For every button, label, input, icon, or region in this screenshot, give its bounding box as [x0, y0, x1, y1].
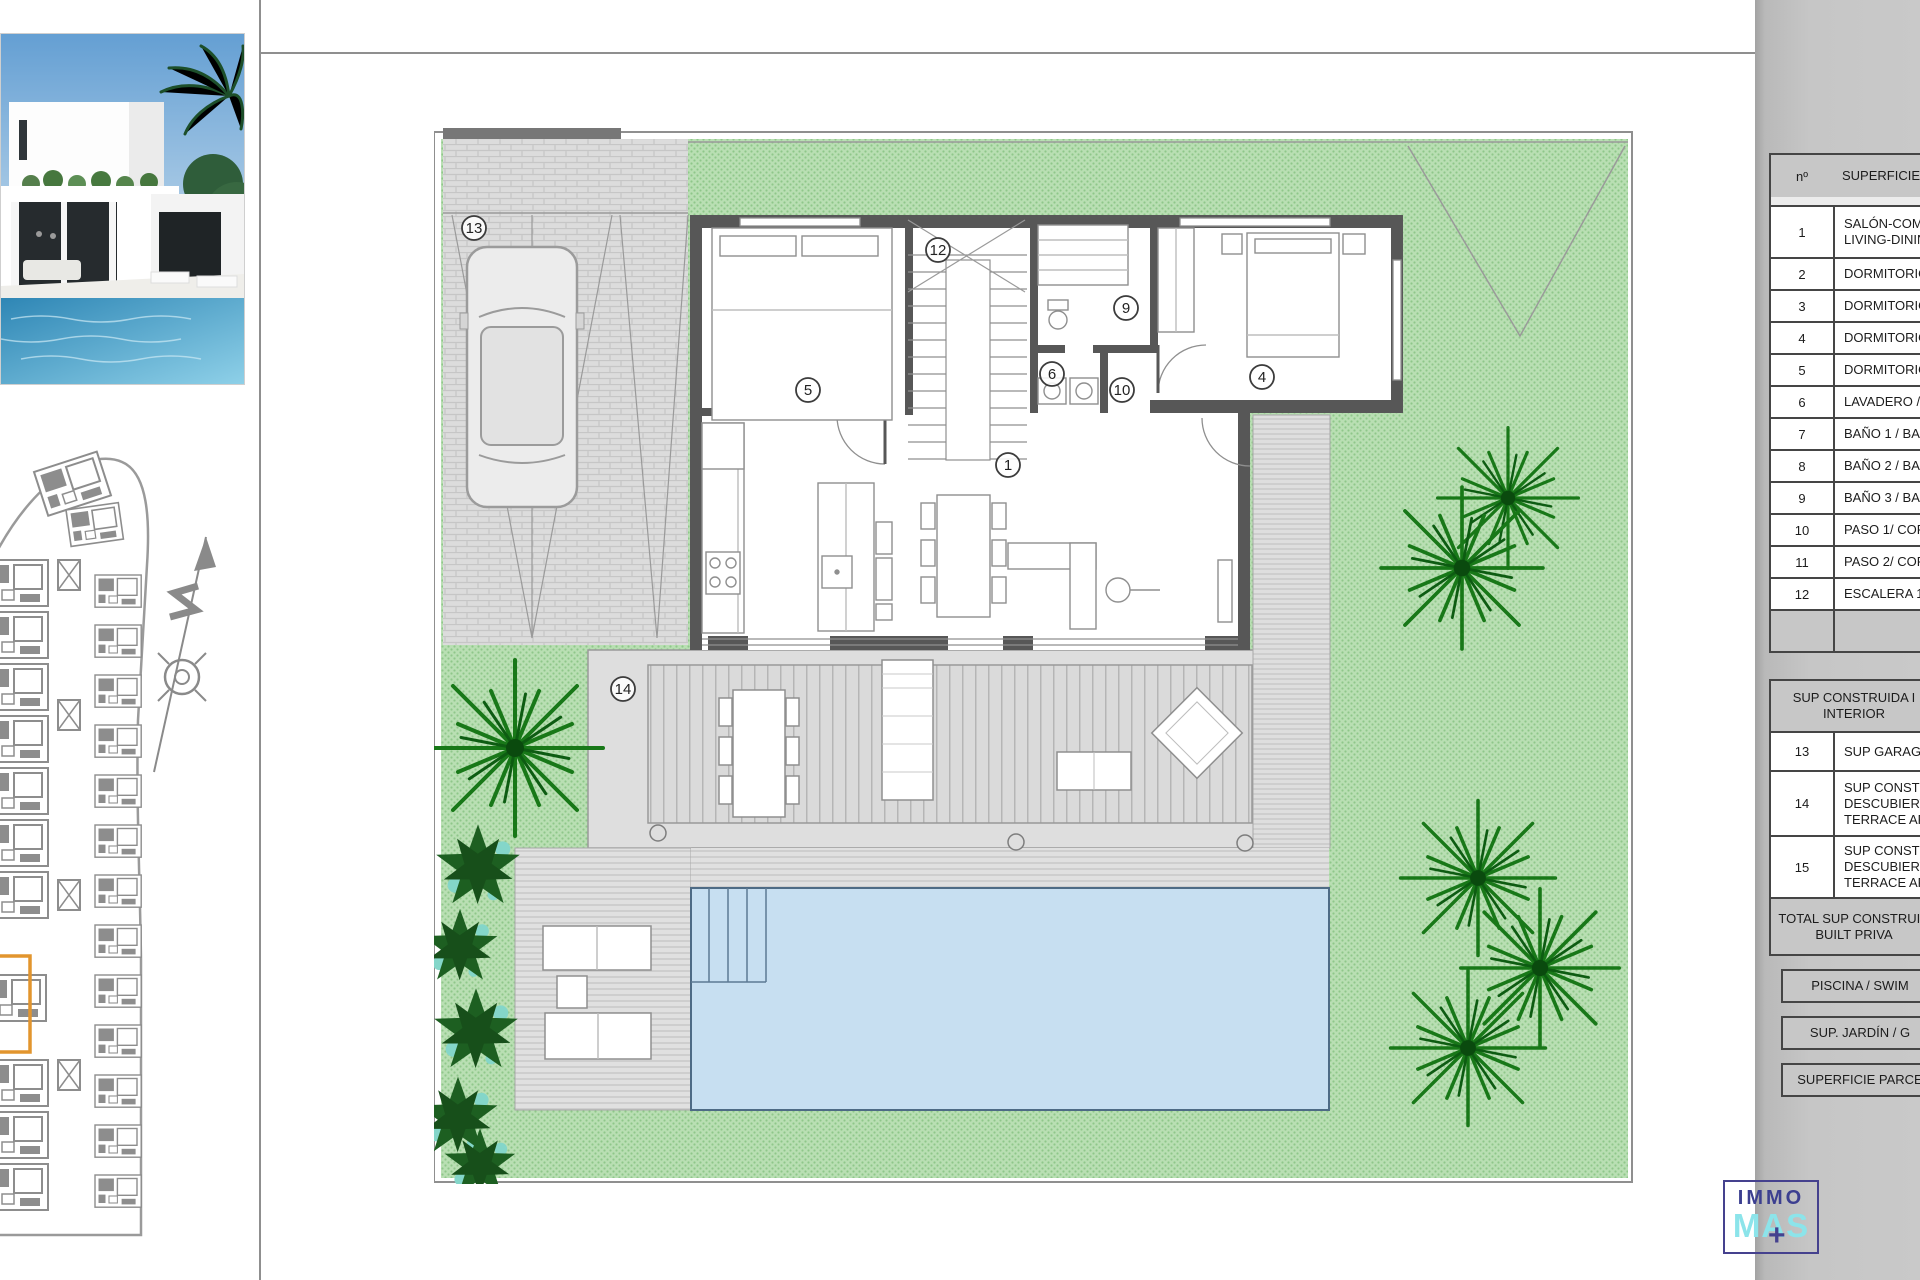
siteplan	[0, 430, 259, 1280]
room-label-text: 1	[1004, 457, 1012, 474]
room-label-text: 12	[930, 242, 947, 259]
interior-built-header: SUP CONSTRUIDA I INTERIOR	[1769, 679, 1920, 733]
immomas-logo: IMMO MAS +	[1723, 1180, 1819, 1254]
row-label: PASO 2/ COR	[1844, 554, 1920, 570]
table-row: 1 SALÓN-COMLIVING-DININ	[1769, 205, 1920, 259]
floor-plan: 1 4 5 6 9 10 12 13 14	[434, 128, 1634, 1184]
row-num: 2	[1771, 259, 1835, 289]
total-built-bar: TOTAL SUP CONSTRUID BUILT PRIVA	[1769, 897, 1920, 956]
room-label-living: 1	[996, 453, 1020, 477]
room-label-hall: 10	[1110, 378, 1134, 402]
room-label-text: 13	[466, 220, 483, 237]
row-num: 13	[1771, 733, 1835, 770]
room-label-bed5: 5	[796, 378, 820, 402]
room-label-text: 14	[615, 681, 632, 698]
row-num: 8	[1771, 451, 1835, 481]
table-row: 13SUP GARAGE	[1769, 731, 1920, 772]
villa-photo-art	[1, 34, 244, 384]
bar-label: SUP. JARDÍN / G	[1783, 1025, 1920, 1041]
table-row: 7BAÑO 1 / BA	[1769, 417, 1920, 451]
plot-bar: SUPERFICIE PARCE	[1781, 1063, 1920, 1097]
row-label: SUP CONSTR	[1844, 843, 1920, 859]
row-label: DORMITORIO	[1844, 266, 1920, 282]
table-row: 10PASO 1/ COR	[1769, 513, 1920, 547]
row-label: ESCALERA 1 /	[1844, 586, 1920, 602]
row-label: DESCUBIERTA	[1844, 859, 1920, 875]
room-label-text: 4	[1258, 369, 1266, 386]
row-num: 15	[1771, 837, 1835, 897]
table-row: 3DORMITORIO	[1769, 289, 1920, 323]
table-row: 12ESCALERA 1 /	[1769, 577, 1920, 611]
villa-photo	[0, 33, 245, 385]
bar-label: BUILT PRIVA	[1771, 927, 1920, 943]
bar-label: SUP CONSTRUIDA I	[1771, 690, 1920, 706]
entrance-gate-wall	[443, 128, 621, 139]
logo-mas-text: MAS +	[1725, 1210, 1817, 1242]
table-row: 11PASO 2/ COR	[1769, 545, 1920, 579]
table-header-surface: SUPERFICIE Ú	[1833, 155, 1920, 197]
room-label-bed4: 4	[1250, 365, 1274, 389]
row-label: LIVING-DININ	[1844, 232, 1920, 248]
driveway	[443, 139, 688, 645]
room-label-text: 6	[1048, 366, 1056, 383]
table-spacer	[1769, 653, 1920, 681]
bar-label: TOTAL SUP CONSTRUID	[1771, 911, 1920, 927]
surfaces-panel: nº SUPERFICIE Ú 1 SALÓN-COMLIVING-DININ …	[1755, 0, 1920, 1280]
row-num: 5	[1771, 355, 1835, 385]
dining-set	[921, 495, 1006, 617]
table-row: 6LAVADERO /	[1769, 385, 1920, 419]
row-label: DORMITORIO	[1844, 298, 1920, 314]
row-label: BAÑO 3 / BA	[1844, 490, 1920, 506]
row-label: DORMITORIO	[1844, 362, 1920, 378]
sheet-top-divider	[259, 52, 1755, 54]
row-label: DORMITORIO	[1844, 330, 1920, 346]
outdoor-dining-set	[719, 690, 799, 817]
row-num: 14	[1771, 772, 1835, 835]
row-num: 3	[1771, 291, 1835, 321]
surfaces-table: nº SUPERFICIE Ú 1 SALÓN-COMLIVING-DININ …	[1769, 155, 1920, 1097]
row-label: BAÑO 2 / BA	[1844, 458, 1920, 474]
row-label: TERRACE ARE	[1844, 812, 1920, 828]
row-num: 12	[1771, 579, 1835, 609]
table-row: 4DORMITORIO	[1769, 321, 1920, 355]
room-label-terrace: 14	[611, 677, 635, 701]
row-label: BAÑO 1 / BA	[1844, 426, 1920, 442]
north-arrow-compass	[154, 537, 216, 772]
bar-label: INTERIOR	[1771, 706, 1920, 722]
row-label: DESCUBIERTA	[1844, 796, 1920, 812]
row-num: 1	[1771, 207, 1835, 257]
table-row: 15 SUP CONSTRDESCUBIERTATERRACE ARE	[1769, 835, 1920, 899]
row-num: 9	[1771, 483, 1835, 513]
bar-label: SUPERFICIE PARCE	[1783, 1072, 1920, 1088]
room-label-laundry: 6	[1040, 362, 1064, 386]
plan-sheet: 1 4 5 6 9 10 12 13 14 nº SUPERFICIE Ú 1 …	[0, 0, 1920, 1280]
room-label-stairs: 12	[926, 238, 950, 262]
room-label-text: 10	[1114, 382, 1131, 399]
logo-plus-icon: +	[1768, 1220, 1787, 1252]
table-row: 14 SUP CONSTRDESCUBIERTATERRACE ARE	[1769, 770, 1920, 837]
row-num: 10	[1771, 515, 1835, 545]
row-label: TERRACE ARE	[1844, 875, 1920, 891]
table-row: 2DORMITORIO	[1769, 257, 1920, 291]
row-num: 7	[1771, 419, 1835, 449]
pool-bar: PISCINA / SWIM	[1781, 969, 1920, 1003]
room-label-text: 5	[804, 382, 812, 399]
table-row: 9BAÑO 3 / BA	[1769, 481, 1920, 515]
row-label: PASO 1/ COR	[1844, 522, 1920, 538]
car	[460, 247, 584, 507]
table-row: 5DORMITORIO	[1769, 353, 1920, 387]
row-label: SUP CONSTR	[1844, 780, 1920, 796]
room-label-garage: 13	[462, 216, 486, 240]
swimming-pool	[691, 888, 1329, 1110]
row-num: 11	[1771, 547, 1835, 577]
row-num: 6	[1771, 387, 1835, 417]
room-label-bath3: 9	[1114, 296, 1138, 320]
table-empty-row	[1769, 609, 1920, 653]
row-label: LAVADERO /	[1844, 394, 1920, 410]
sheet-left-divider	[259, 0, 261, 1280]
bar-label: PISCINA / SWIM	[1783, 978, 1920, 994]
table-header-num: nº	[1771, 155, 1833, 197]
room-label-text: 9	[1122, 300, 1130, 317]
table-header-row: nº SUPERFICIE Ú	[1769, 153, 1920, 199]
garden-bar: SUP. JARDÍN / G	[1781, 1016, 1920, 1050]
row-num: 4	[1771, 323, 1835, 353]
row-label: SALÓN-COM	[1844, 216, 1920, 232]
table-row: 8BAÑO 2 / BA	[1769, 449, 1920, 483]
row-label: SUP GARAGE	[1844, 744, 1920, 760]
